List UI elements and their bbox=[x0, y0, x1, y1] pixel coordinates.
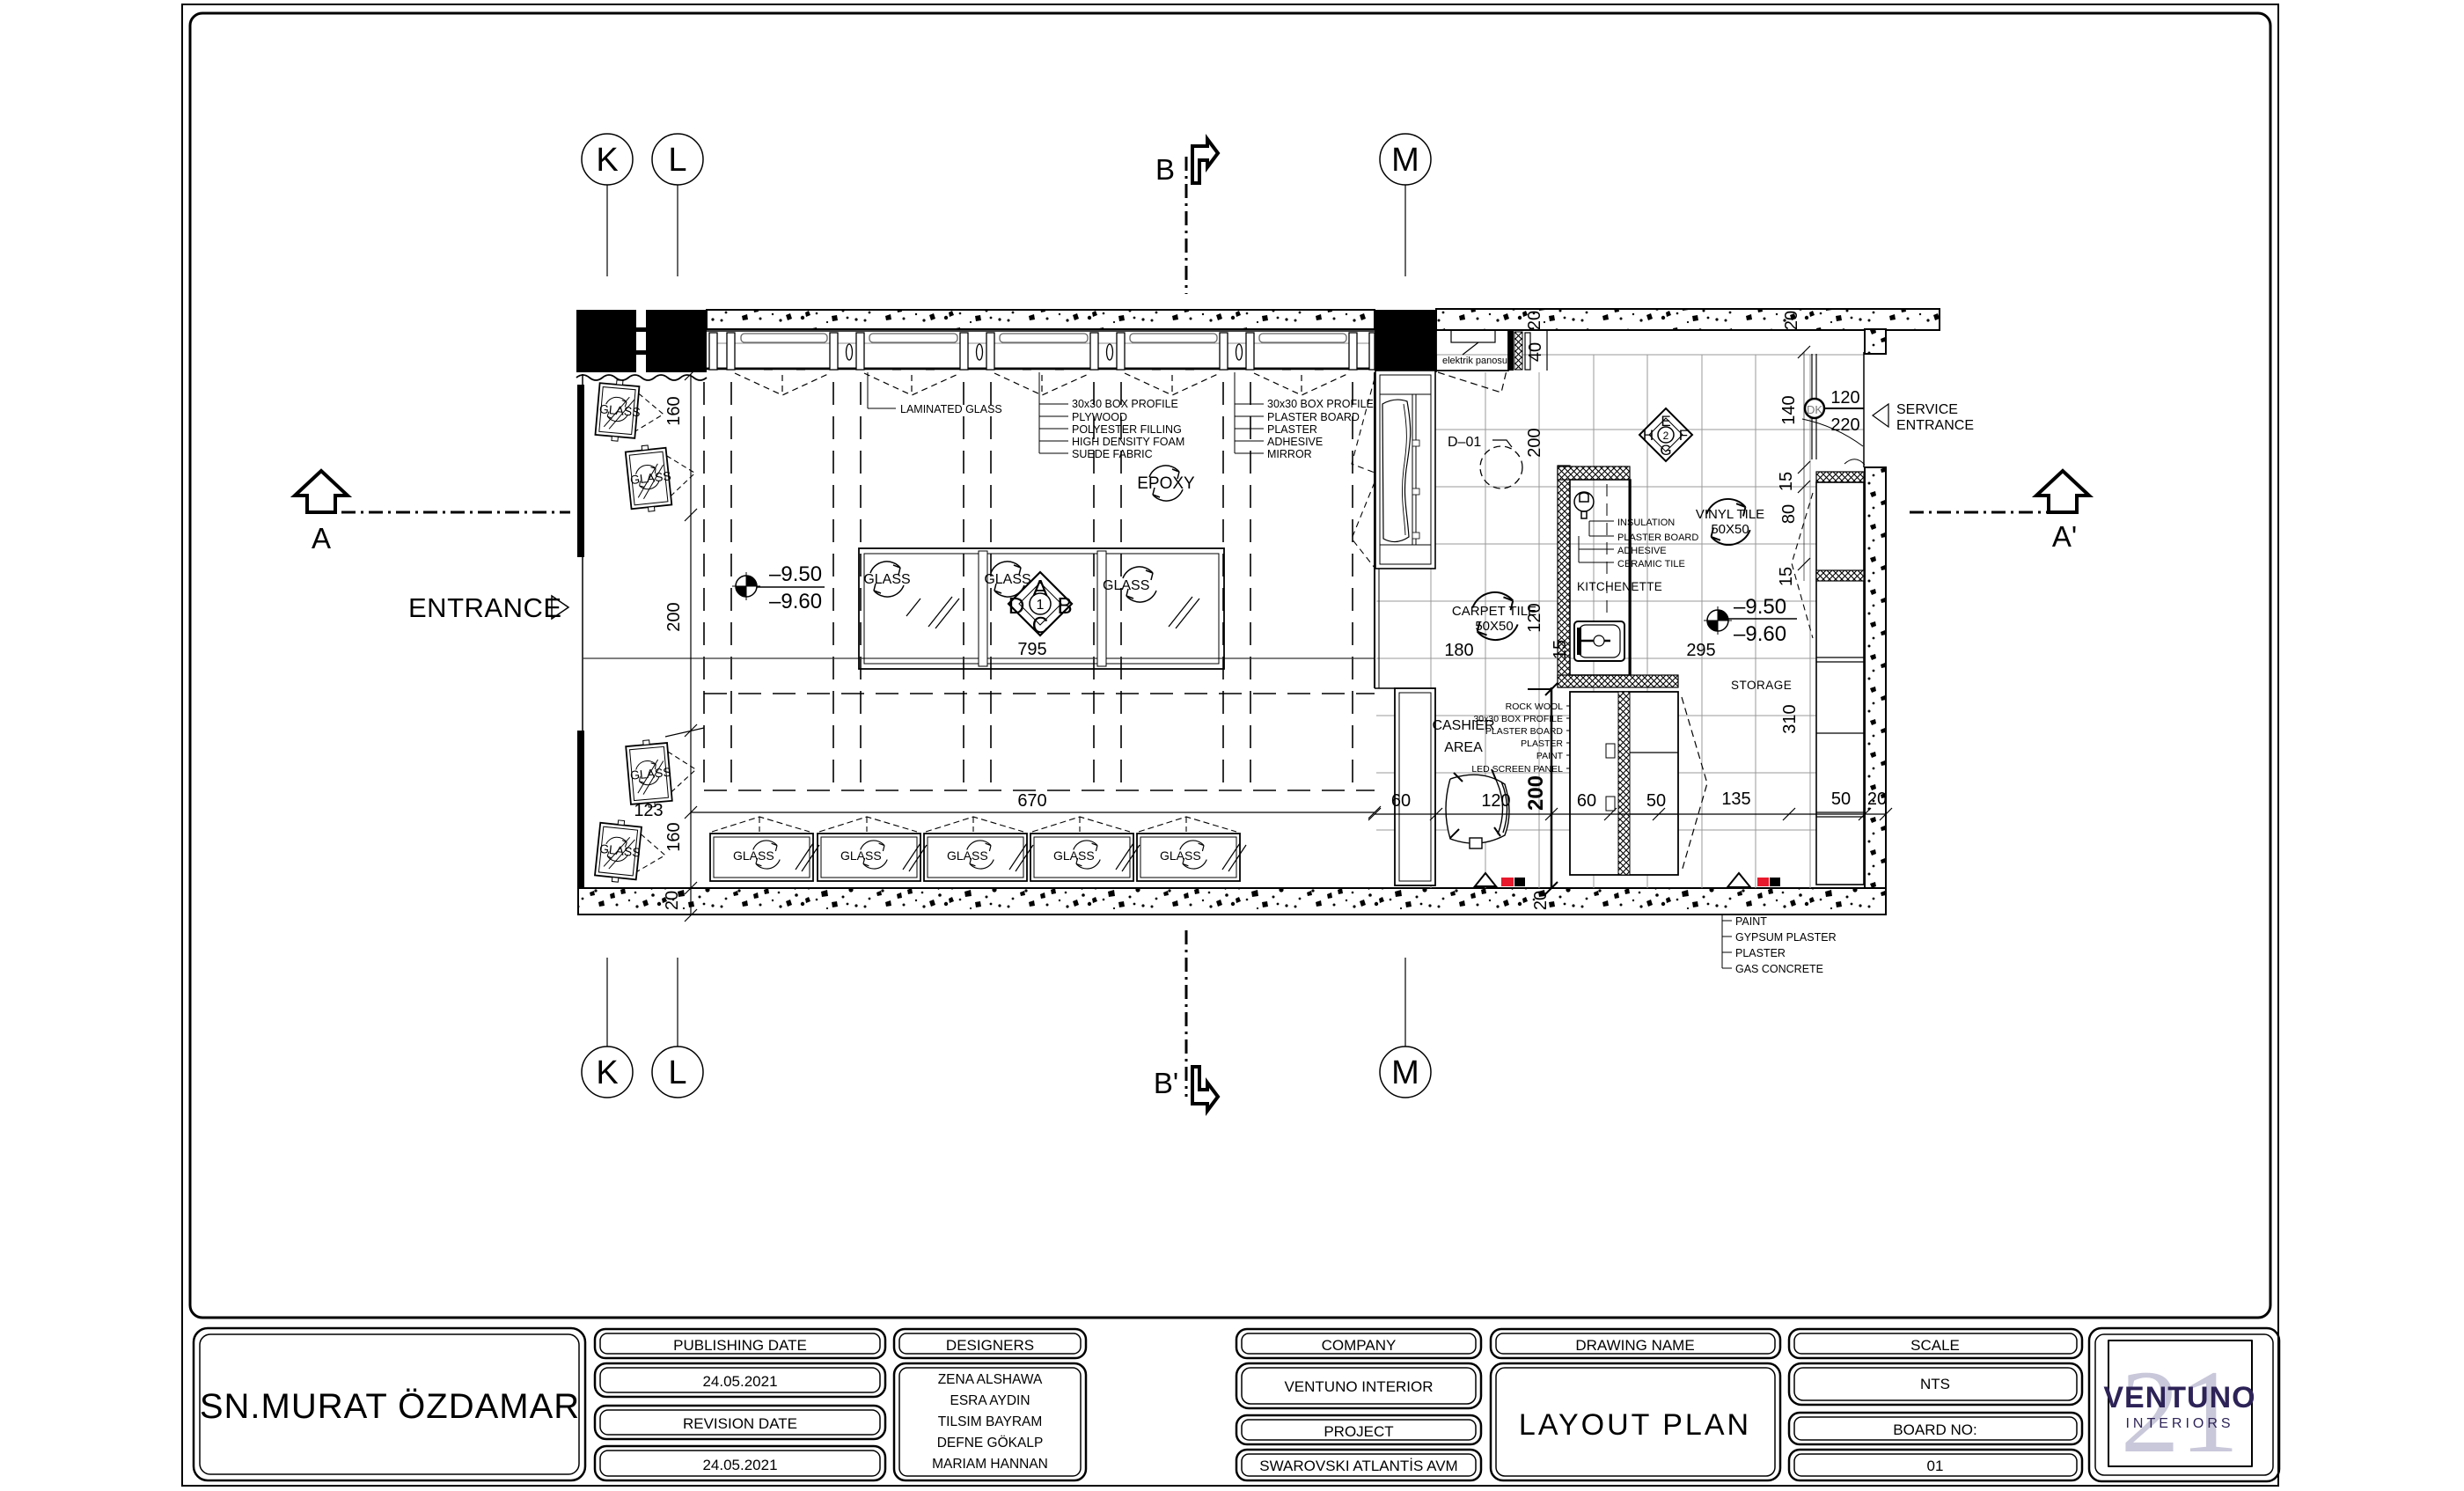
svg-text:GAS CONCRETE: GAS CONCRETE bbox=[1735, 963, 1823, 975]
svg-text:–9.50: –9.50 bbox=[1734, 595, 1786, 619]
svg-text:GYPSUM PLASTER: GYPSUM PLASTER bbox=[1735, 931, 1837, 944]
svg-text:PAINT: PAINT bbox=[1536, 751, 1564, 761]
svg-text:B: B bbox=[1155, 153, 1175, 186]
svg-text:160: 160 bbox=[664, 396, 684, 425]
svg-text:A': A' bbox=[2052, 520, 2077, 553]
svg-text:PLASTER BOARD: PLASTER BOARD bbox=[1485, 726, 1564, 737]
svg-text:elektrik panosu: elektrik panosu bbox=[1442, 356, 1507, 366]
svg-text:GLASS: GLASS bbox=[1160, 848, 1201, 863]
svg-text:L: L bbox=[668, 142, 686, 179]
svg-text:20: 20 bbox=[663, 891, 682, 910]
svg-text:F: F bbox=[1679, 427, 1688, 444]
svg-text:PLASTER: PLASTER bbox=[1735, 947, 1786, 959]
svg-text:HIGH DENSITY FOAM: HIGH DENSITY FOAM bbox=[1072, 436, 1184, 448]
svg-text:MIRROR: MIRROR bbox=[1267, 448, 1312, 460]
svg-text:REVISION DATE: REVISION DATE bbox=[683, 1415, 797, 1432]
svg-text:H: H bbox=[1643, 427, 1654, 444]
svg-text:EPOXY: EPOXY bbox=[1137, 474, 1195, 493]
svg-text:B': B' bbox=[1154, 1067, 1178, 1099]
svg-text:30x30 BOX PROFILE: 30x30 BOX PROFILE bbox=[1072, 398, 1178, 410]
svg-text:295: 295 bbox=[1686, 641, 1715, 660]
svg-text:KITCHENETTE: KITCHENETTE bbox=[1577, 580, 1662, 593]
svg-text:120: 120 bbox=[1481, 791, 1510, 811]
svg-text:AREA: AREA bbox=[1444, 740, 1483, 755]
svg-text:GLASS: GLASS bbox=[947, 848, 988, 863]
svg-text:INTERIORS: INTERIORS bbox=[2125, 1416, 2233, 1431]
svg-text:DRAWING NAME: DRAWING NAME bbox=[1575, 1337, 1694, 1354]
svg-text:B: B bbox=[1057, 592, 1072, 619]
svg-text:24.05.2021: 24.05.2021 bbox=[702, 1373, 777, 1390]
svg-text:60: 60 bbox=[1391, 791, 1411, 811]
svg-text:PLASTER: PLASTER bbox=[1267, 423, 1317, 436]
svg-text:24.05.2021: 24.05.2021 bbox=[702, 1457, 777, 1473]
svg-text:COMPANY: COMPANY bbox=[1322, 1337, 1397, 1354]
svg-text:200: 200 bbox=[1525, 428, 1544, 457]
svg-text:20: 20 bbox=[1531, 891, 1551, 910]
svg-text:SERVICE: SERVICE bbox=[1896, 402, 1958, 417]
svg-text:PAINT: PAINT bbox=[1735, 915, 1767, 928]
svg-text:POLYESTER FILLING: POLYESTER FILLING bbox=[1072, 423, 1182, 436]
svg-text:ENTRANCE: ENTRANCE bbox=[408, 592, 562, 623]
svg-text:–9.60: –9.60 bbox=[1734, 622, 1786, 646]
svg-text:123: 123 bbox=[634, 801, 663, 820]
svg-text:TILSIM BAYRAM: TILSIM BAYRAM bbox=[938, 1414, 1043, 1429]
svg-text:GLASS: GLASS bbox=[733, 848, 774, 863]
svg-text:15: 15 bbox=[1777, 567, 1796, 586]
svg-text:795: 795 bbox=[1017, 640, 1046, 659]
svg-text:K: K bbox=[596, 1054, 618, 1091]
svg-text:310: 310 bbox=[1780, 704, 1800, 733]
svg-text:01: 01 bbox=[1927, 1458, 1944, 1474]
svg-text:D: D bbox=[1008, 592, 1025, 619]
svg-text:MARIAM HANNAN: MARIAM HANNAN bbox=[932, 1457, 1048, 1472]
svg-text:20: 20 bbox=[1782, 311, 1801, 330]
svg-text:VENTUNO INTERIOR: VENTUNO INTERIOR bbox=[1284, 1378, 1433, 1395]
svg-text:15: 15 bbox=[1551, 640, 1570, 659]
svg-text:200: 200 bbox=[1524, 775, 1548, 811]
svg-text:INSULATION: INSULATION bbox=[1617, 518, 1675, 528]
svg-text:PLASTER: PLASTER bbox=[1521, 738, 1563, 749]
svg-text:PLYWOOD: PLYWOOD bbox=[1072, 411, 1127, 423]
svg-text:ADHESIVE: ADHESIVE bbox=[1267, 436, 1323, 448]
svg-text:GLASS: GLASS bbox=[1053, 848, 1095, 863]
svg-text:PROJECT: PROJECT bbox=[1324, 1423, 1393, 1440]
svg-text:PLASTER BOARD: PLASTER BOARD bbox=[1267, 411, 1360, 423]
svg-text:80: 80 bbox=[1779, 504, 1799, 524]
svg-text:120: 120 bbox=[1830, 388, 1859, 408]
svg-text:50X50: 50X50 bbox=[1711, 522, 1749, 537]
svg-text:ZENA ALSHAWA: ZENA ALSHAWA bbox=[938, 1372, 1043, 1387]
svg-text:ENTRANCE: ENTRANCE bbox=[1896, 418, 1974, 433]
svg-text:1: 1 bbox=[1037, 598, 1045, 613]
svg-text:50X50: 50X50 bbox=[1475, 619, 1513, 634]
svg-text:C: C bbox=[1032, 612, 1049, 638]
svg-text:180: 180 bbox=[1444, 641, 1473, 660]
svg-text:SN.MURAT ÖZDAMAR: SN.MURAT ÖZDAMAR bbox=[200, 1387, 580, 1426]
svg-text:DEFNE GÖKALP: DEFNE GÖKALP bbox=[937, 1435, 1044, 1451]
svg-text:20: 20 bbox=[1525, 311, 1544, 330]
svg-text:D–01: D–01 bbox=[1448, 435, 1481, 450]
svg-text:LED SCREEN PANEL: LED SCREEN PANEL bbox=[1471, 764, 1563, 775]
svg-text:VINYL TILE: VINYL TILE bbox=[1696, 507, 1764, 522]
svg-text:GLASS: GLASS bbox=[1103, 578, 1149, 593]
svg-text:M: M bbox=[1391, 142, 1419, 179]
svg-text:L: L bbox=[668, 1054, 686, 1091]
svg-text:CERAMIC TILE: CERAMIC TILE bbox=[1617, 559, 1685, 569]
svg-text:ROCK WOOL: ROCK WOOL bbox=[1506, 701, 1563, 712]
svg-text:ADHESIVE: ADHESIVE bbox=[1617, 546, 1667, 556]
svg-text:50: 50 bbox=[1646, 791, 1666, 811]
svg-text:G: G bbox=[1660, 442, 1671, 459]
svg-text:–9.60: –9.60 bbox=[769, 590, 822, 613]
svg-text:GLASS: GLASS bbox=[863, 572, 910, 587]
svg-text:GLASS: GLASS bbox=[984, 572, 1030, 587]
svg-text:E: E bbox=[1661, 413, 1670, 430]
svg-text:GLASS: GLASS bbox=[840, 848, 882, 863]
svg-text:60: 60 bbox=[1577, 791, 1596, 811]
svg-text:220: 220 bbox=[1830, 415, 1859, 435]
svg-text:A: A bbox=[312, 522, 331, 555]
svg-text:SUEDE FABRIC: SUEDE FABRIC bbox=[1072, 448, 1153, 460]
svg-text:SCALE: SCALE bbox=[1910, 1337, 1960, 1354]
svg-text:LAYOUT PLAN: LAYOUT PLAN bbox=[1519, 1408, 1751, 1442]
svg-text:30x30 BOX PROFILE: 30x30 BOX PROFILE bbox=[1473, 714, 1563, 724]
svg-text:–9.50: –9.50 bbox=[769, 562, 822, 586]
svg-text:NTS: NTS bbox=[1920, 1376, 1950, 1392]
svg-text:K: K bbox=[596, 142, 618, 179]
svg-text:135: 135 bbox=[1721, 790, 1750, 809]
svg-text:LAMINATED GLASS: LAMINATED GLASS bbox=[900, 403, 1002, 415]
svg-text:20: 20 bbox=[1867, 790, 1887, 809]
svg-text:VENTUNO: VENTUNO bbox=[2103, 1381, 2255, 1414]
svg-text:SWAROVSKI ATLANTİS AVM: SWAROVSKI ATLANTİS AVM bbox=[1259, 1458, 1457, 1474]
svg-text:CARPET TILE: CARPET TILE bbox=[1452, 604, 1536, 619]
svg-text:50: 50 bbox=[1831, 790, 1851, 809]
svg-text:200: 200 bbox=[664, 602, 684, 631]
svg-text:160: 160 bbox=[664, 822, 684, 851]
svg-text:670: 670 bbox=[1017, 791, 1046, 811]
svg-text:ESRA AYDIN: ESRA AYDIN bbox=[950, 1393, 1030, 1408]
svg-text:15: 15 bbox=[1777, 472, 1796, 491]
svg-text:BOARD NO:: BOARD NO: bbox=[1893, 1421, 1976, 1438]
svg-text:2: 2 bbox=[1663, 430, 1669, 442]
svg-text:STORAGE: STORAGE bbox=[1731, 679, 1792, 692]
svg-text:40: 40 bbox=[1526, 342, 1545, 362]
svg-text:PLASTER BOARD: PLASTER BOARD bbox=[1617, 532, 1698, 543]
svg-text:M: M bbox=[1391, 1054, 1419, 1091]
svg-text:30x30 BOX PROFILE: 30x30 BOX PROFILE bbox=[1267, 398, 1374, 410]
svg-text:DESIGNERS: DESIGNERS bbox=[946, 1337, 1034, 1354]
svg-text:140: 140 bbox=[1779, 395, 1799, 424]
svg-text:PUBLISHING DATE: PUBLISHING DATE bbox=[673, 1337, 807, 1354]
svg-text:DK: DK bbox=[1807, 403, 1822, 416]
